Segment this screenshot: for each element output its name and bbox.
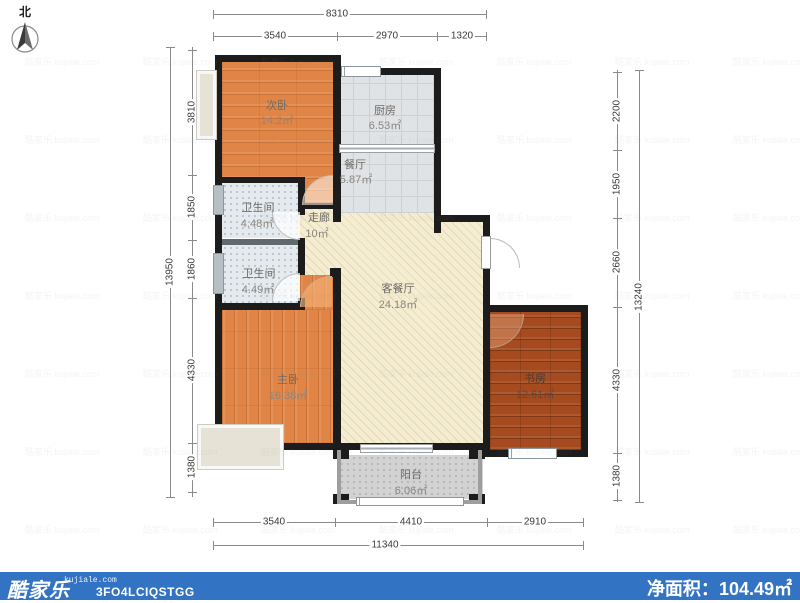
- watermark-text: 酷家乐 kujiale.com: [497, 211, 572, 224]
- dim-left-seg2: 1860: [187, 256, 198, 282]
- watermark-text: 酷家乐 kujiale.com: [143, 367, 218, 380]
- balcony-window: [356, 497, 464, 506]
- room-label-bedroom2: 次卧: [266, 97, 288, 113]
- dim-tick: [613, 453, 622, 454]
- watermark-text: 酷家乐 kujiale.com: [733, 133, 800, 146]
- room-area-kitchen: 6.53㎡: [369, 117, 401, 133]
- wall-bedroom2-top: [215, 55, 341, 62]
- room-label-bathroom1: 卫生间: [242, 199, 275, 215]
- wall-left-outer: [215, 55, 222, 427]
- dim-right-seg4: 1380: [612, 463, 623, 489]
- room-area-bedroom2: 14.2㎡: [261, 112, 293, 128]
- dim-tick: [188, 492, 197, 493]
- dim-right-seg0: 2200: [612, 98, 623, 124]
- dim-bottom-overall: 11340: [369, 540, 400, 551]
- dim-tick: [613, 500, 622, 501]
- watermark-text: 酷家乐 kujiale.com: [497, 55, 572, 68]
- wall-study-right: [581, 305, 588, 457]
- watermark-text: 酷家乐 kujiale.com: [497, 133, 572, 146]
- dim-tick: [166, 47, 175, 48]
- watermark-text: 酷家乐 kujiale.com: [25, 133, 100, 146]
- balcony-corner-tr: [469, 450, 485, 459]
- kitchen-window: [341, 66, 381, 77]
- dim-left-seg4: 1380: [187, 454, 198, 480]
- room-label-master: 主卧: [277, 371, 299, 387]
- watermark-text: 酷家乐 kujiale.com: [615, 55, 690, 68]
- dim-tick: [613, 150, 622, 151]
- dim-tick: [635, 70, 644, 71]
- living-room-floor-right: [434, 222, 483, 443]
- dim-bottom-seg0: 3540: [261, 517, 287, 528]
- dim-tick: [635, 502, 644, 503]
- dim-bottom-seg2: 2910: [522, 517, 548, 528]
- bay-window-master: [198, 425, 283, 469]
- room-area-bathroom2: 4.49㎡: [242, 281, 274, 297]
- entry-door-arc: [490, 238, 520, 268]
- dim-tick: [213, 541, 214, 550]
- wall-bath-divider: [215, 239, 305, 245]
- kujiale-domain: kujiale.com: [64, 576, 117, 585]
- wall-study-left: [483, 312, 490, 457]
- watermark-text: 酷家乐 kujiale.com: [733, 211, 800, 224]
- room-area-bathroom1: 4.48㎡: [241, 215, 273, 231]
- watermark-text: 酷家乐 kujiale.com: [615, 523, 690, 536]
- north-label: 北: [8, 3, 42, 20]
- dim-right-seg1: 1950: [612, 171, 623, 197]
- watermark-text: 酷家乐 kujiale.com: [379, 55, 454, 68]
- watermark-text: 酷家乐 kujiale.com: [25, 445, 100, 458]
- dim-left-seg3: 4330: [187, 357, 198, 383]
- wall-kitchen-right: [434, 68, 441, 233]
- wall-living-topright: [434, 215, 490, 222]
- dim-tick: [188, 443, 197, 444]
- room-label-bathroom2: 卫生间: [243, 265, 276, 281]
- wall-master-right: [333, 268, 341, 450]
- room-label-living: 客餐厅: [382, 280, 415, 296]
- dim-tick: [437, 32, 438, 41]
- dim-right-overall: 13240: [634, 281, 645, 313]
- entry-door-leaf: [481, 236, 491, 269]
- dim-tick: [213, 518, 214, 527]
- room-area-study: 12.61㎡: [516, 386, 555, 402]
- watermark-text: 酷家乐 kujiale.com: [733, 289, 800, 302]
- watermark-text: 酷家乐 kujiale.com: [615, 289, 690, 302]
- dim-top-overall: 8310: [324, 9, 350, 20]
- room-area-master: 16.38㎡: [269, 387, 308, 403]
- watermark-text: 酷家乐 kujiale.com: [25, 523, 100, 536]
- wall-bath2-bottom: [215, 303, 305, 310]
- compass-icon: [8, 20, 42, 54]
- dim-top-seg1: 2970: [374, 31, 400, 42]
- watermark-text: 酷家乐 kujiale.com: [25, 289, 100, 302]
- dim-tick: [486, 32, 487, 41]
- watermark-text: 酷家乐 kujiale.com: [25, 211, 100, 224]
- plan-code: 3FO4LCIQSTGG: [96, 585, 195, 599]
- balcony-wall-right: [478, 450, 482, 504]
- dim-tick: [583, 541, 584, 550]
- watermark-text: 酷家乐 kujiale.com: [143, 523, 218, 536]
- watermark-text: 酷家乐 kujiale.com: [615, 211, 690, 224]
- watermark-text: 酷家乐 kujiale.com: [733, 445, 800, 458]
- watermark-text: 酷家乐 kujiale.com: [497, 289, 572, 302]
- dim-tick: [188, 175, 197, 176]
- wall-study-top: [483, 305, 588, 312]
- room-label-dining: 餐厅: [344, 156, 366, 172]
- wall-right-above-entry: [483, 215, 490, 238]
- floorplan-canvas: 次卧 14.2㎡ 厨房 6.53㎡ 餐厅 5.87㎡ 卫生间 4.48㎡ 走廊 …: [0, 0, 800, 600]
- dim-tick: [613, 72, 622, 73]
- dim-top-seg2: 1320: [449, 31, 475, 42]
- dim-tick: [335, 518, 336, 527]
- wall-bath-right-b: [298, 238, 305, 275]
- dim-tick: [213, 10, 214, 19]
- dim-top-seg-line: [213, 36, 487, 37]
- kujiale-logo: 酷家乐: [7, 574, 70, 603]
- balcony-wall-left: [337, 450, 341, 504]
- dim-left-seg0: 3810: [187, 99, 198, 125]
- bathroom2-window: [213, 253, 224, 294]
- watermark-text: 酷家乐 kujiale.com: [615, 367, 690, 380]
- watermark-text: 酷家乐 kujiale.com: [25, 367, 100, 380]
- room-area-balcony: 6.06㎡: [395, 482, 427, 498]
- balcony-sliding-door: [360, 444, 433, 453]
- room-label-kitchen: 厨房: [374, 102, 396, 118]
- wall-bedroom2-right: [333, 55, 341, 222]
- dim-tick: [213, 32, 214, 41]
- net-area-value: 104.49㎡: [719, 579, 792, 599]
- bathroom1-window: [213, 185, 224, 215]
- dim-tick: [188, 240, 197, 241]
- wall-bath1-top: [215, 177, 305, 183]
- room-label-balcony: 阳台: [400, 466, 422, 482]
- dim-tick: [486, 10, 487, 19]
- dim-tick: [337, 32, 338, 41]
- study-window: [508, 448, 557, 459]
- watermark-text: 酷家乐 kujiale.com: [143, 55, 218, 68]
- watermark-text: 酷家乐 kujiale.com: [143, 289, 218, 302]
- dim-tick: [613, 307, 622, 308]
- net-area-label: 净面积：: [647, 579, 719, 599]
- room-area-corridor: 10㎡: [305, 225, 328, 241]
- dim-bottom-seg1: 4410: [398, 517, 424, 528]
- dim-right-seg-line: [617, 70, 618, 502]
- room-label-study: 书房: [524, 370, 546, 386]
- footer-bar: 酷家乐 kujiale.com 3FO4LCIQSTGG 净面积：104.49㎡: [0, 572, 800, 600]
- balcony-corner-tl: [333, 450, 349, 459]
- watermark-text: 酷家乐 kujiale.com: [615, 133, 690, 146]
- watermark-text: 酷家乐 kujiale.com: [733, 367, 800, 380]
- dim-right-seg2: 2660: [612, 249, 623, 275]
- bay-window-bedroom2: [197, 71, 216, 139]
- wall-right-below-entry: [483, 266, 490, 312]
- room-area-living: 24.18㎡: [379, 296, 418, 312]
- dim-tick: [613, 218, 622, 219]
- north-indicator: 北: [8, 3, 42, 59]
- watermark-text: 酷家乐 kujiale.com: [733, 55, 800, 68]
- dim-tick: [188, 50, 197, 51]
- watermark-text: 酷家乐 kujiale.com: [733, 523, 800, 536]
- dim-left-overall: 13950: [165, 256, 176, 288]
- room-label-corridor: 走廊: [308, 209, 330, 225]
- dim-tick: [583, 518, 584, 527]
- dim-left-seg1: 1850: [187, 194, 198, 220]
- dim-tick: [166, 497, 175, 498]
- dim-tick: [188, 298, 197, 299]
- net-area: 净面积：104.49㎡: [647, 575, 792, 601]
- watermark-text: 酷家乐 kujiale.com: [615, 445, 690, 458]
- room-area-dining: 5.87㎡: [340, 171, 372, 187]
- kitchen-sliding-door: [339, 144, 435, 153]
- dim-top-seg0: 3540: [262, 31, 288, 42]
- dim-right-seg3: 4330: [612, 367, 623, 393]
- watermark-text: 酷家乐 kujiale.com: [143, 211, 218, 224]
- dim-tick: [487, 518, 488, 527]
